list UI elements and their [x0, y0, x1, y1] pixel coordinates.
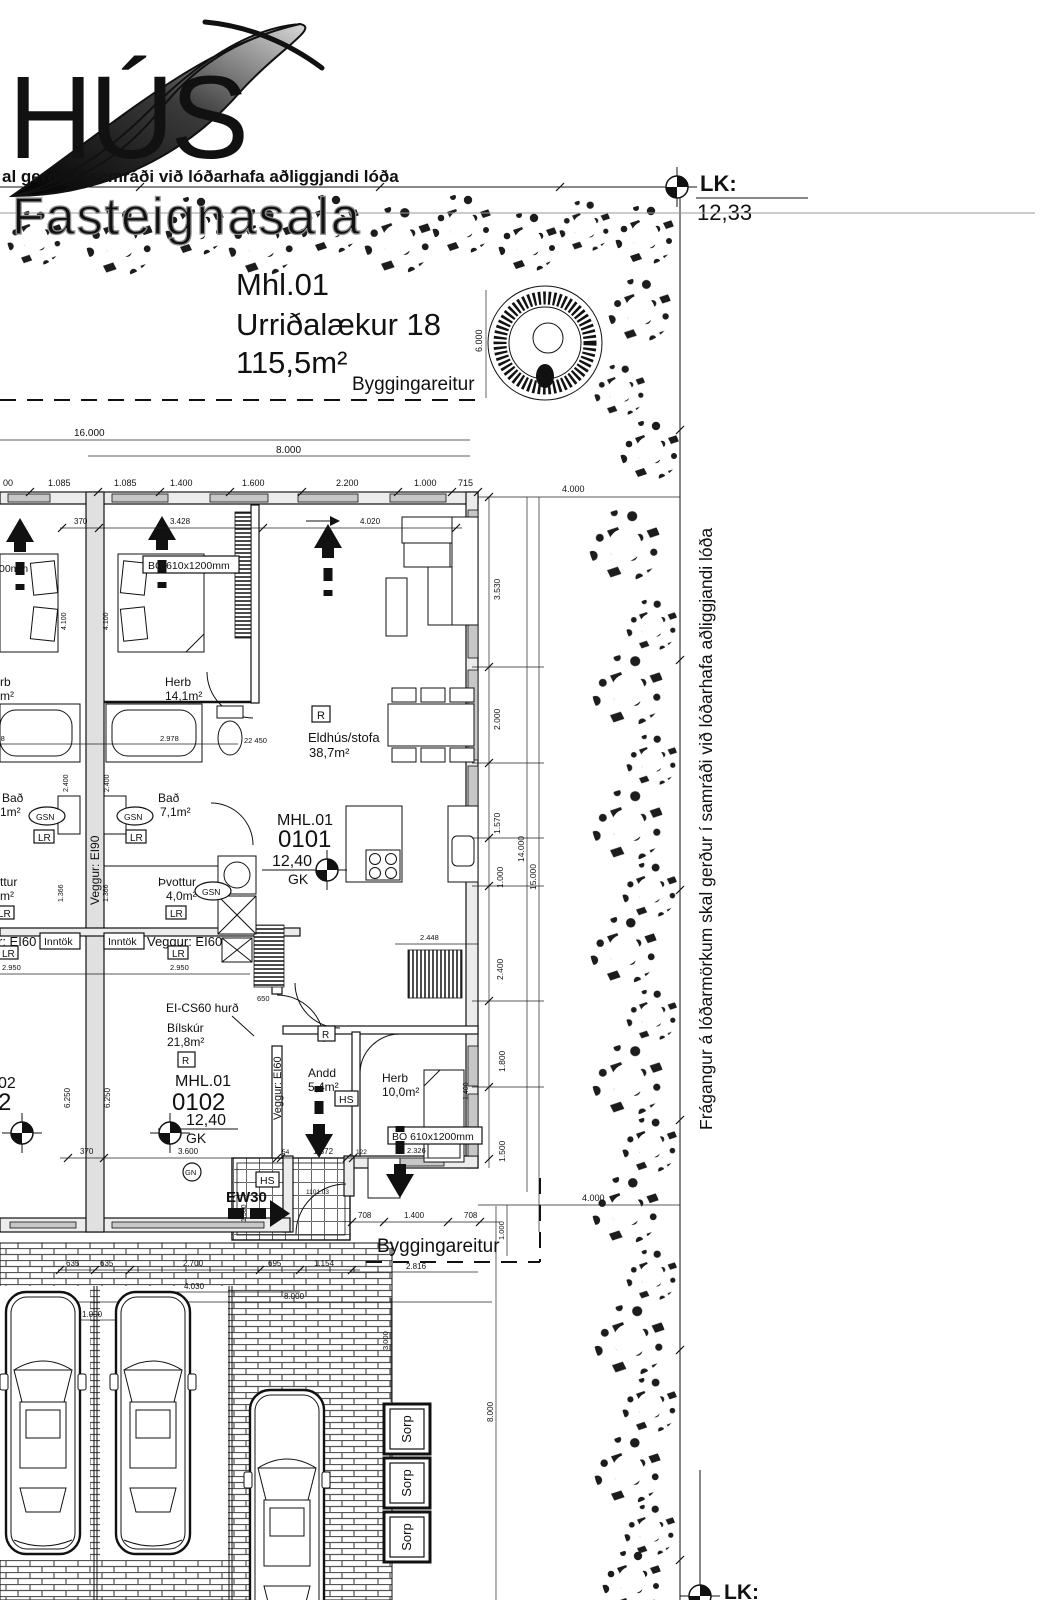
inntok-label: Inntök: [44, 936, 73, 948]
dim: 370: [74, 517, 88, 526]
dim: 2.326: [407, 1146, 426, 1155]
gsn-label: GSN: [36, 812, 54, 822]
dim: 1.372: [313, 1147, 334, 1156]
room-neighbor-herb-area: m²: [0, 689, 14, 703]
sofa: [386, 517, 478, 636]
dim: 8.000: [486, 1401, 495, 1422]
flow-arrow-icon: [306, 516, 340, 526]
dim: 650: [257, 994, 270, 1003]
door-arc: [295, 983, 340, 1028]
inntok-label: Inntök: [108, 936, 137, 948]
lr-label: LR: [38, 833, 51, 844]
car: [0, 1292, 86, 1554]
dim: 2.700: [183, 1259, 204, 1268]
unit-a-nr: 0101: [278, 826, 331, 853]
lr-label: LR: [0, 909, 11, 920]
toilet: [217, 706, 243, 718]
room-bilskur-name: Bílskúr: [167, 1021, 204, 1035]
room-eldhus-area: 38,7m²: [309, 745, 350, 760]
room-neighbor-herb: rb: [0, 675, 11, 689]
dim: 4.020: [360, 517, 381, 526]
dim: 1.366: [103, 884, 110, 902]
dim: 4.000: [582, 1193, 605, 1203]
smoke-detector-icon: R: [317, 710, 325, 722]
dim: 3.530: [492, 578, 502, 600]
room-bad-area: 7,1m²: [160, 805, 191, 819]
dim: 635: [66, 1259, 80, 1268]
plan-drawing: LK: 12,33 LK: Frágangur á lóðarmörkum sk…: [0, 0, 1058, 1600]
hs-label: HS: [260, 1175, 275, 1187]
dim: 54: [282, 1149, 290, 1156]
dim: 2.400: [63, 774, 70, 792]
unit-b-level: 12,40: [186, 1112, 226, 1129]
dim: 2.448: [420, 933, 439, 942]
lk-top-label: LK:: [700, 171, 737, 196]
plot-label-top: Byggingareitur: [352, 374, 475, 395]
room-bad-name: Bað: [158, 791, 180, 805]
room-herb2-name: Herb: [382, 1071, 408, 1085]
dim: 708: [358, 1211, 372, 1220]
hs-label: HS: [339, 1094, 354, 1106]
room-thvottur-area: 4,0m²: [166, 889, 197, 903]
address: Urriðalækur 18: [236, 307, 441, 342]
dim: 4.030: [184, 1282, 205, 1291]
sorp-label: Sorp: [399, 1415, 414, 1442]
lk-bottom-label: LK:: [724, 1581, 759, 1600]
dim: 1.570: [492, 812, 502, 834]
unit-0101: MHL.01 0101 12,40 GK: [262, 812, 347, 890]
bathroom: [0, 704, 243, 762]
unit-a-level: 12,40: [272, 853, 312, 870]
dim: 1.000: [495, 866, 505, 888]
dim: 122: [356, 1149, 367, 1156]
dim: 00: [3, 478, 13, 488]
room-andd-name: Andd: [308, 1066, 336, 1080]
dim: 2.400: [495, 958, 505, 980]
room-neighbor-thv: ttur: [0, 875, 17, 889]
building-id: Mhl.01: [236, 267, 329, 302]
lr-label: LR: [172, 949, 185, 960]
site-plan-page: LK: 12,33 LK: Frágangur á lóðarmörkum sk…: [0, 0, 1058, 1600]
dim: 2.950: [2, 963, 21, 972]
dim: 635: [100, 1259, 114, 1268]
sorp-label: Sorp: [399, 1469, 414, 1496]
dim: 8.000: [284, 1292, 305, 1301]
dim: 8.000: [276, 445, 301, 456]
dim: 1.400: [404, 1211, 425, 1220]
room-neighbor-thv-area: m²: [0, 889, 14, 903]
unit-n-big: 2: [0, 1089, 11, 1116]
dim: 695: [268, 1259, 282, 1268]
dim: 1.000: [414, 478, 437, 488]
dim: 2.200: [336, 478, 359, 488]
dim: 6.250: [63, 1087, 72, 1108]
dim-6000: 6.000: [474, 329, 484, 352]
wall60-vert-label: Veggur: EI60: [272, 1056, 284, 1120]
dim: 3.428: [170, 517, 191, 526]
car: [110, 1292, 196, 1554]
building-area: 115,5m²: [236, 345, 347, 380]
top-note: al gerður í samráði við lóðarhafa aðligg…: [2, 167, 399, 186]
ei-cs60-label: EI-CS60 hurð: [166, 1001, 239, 1015]
dim: 1.800: [497, 1050, 507, 1072]
dim: 1.600: [242, 478, 265, 488]
dim: 715: [458, 478, 473, 488]
dim: 16.000: [74, 428, 105, 439]
room-eldhus-name: Eldhús/stofa: [308, 730, 380, 745]
tech-shaft: [254, 925, 284, 987]
room-neighbor-bad: Bað: [2, 791, 24, 805]
door-arc: [360, 1034, 400, 1072]
kitchen: [346, 806, 478, 882]
dim: 1.000: [497, 1221, 506, 1240]
side-table: [386, 578, 407, 636]
logo: HÚS Fasteignasala: [0, 22, 1035, 246]
plot-label-bottom: Byggingareitur: [377, 1236, 500, 1257]
gsn-label: GSN: [124, 812, 142, 822]
dim: 2.950: [170, 963, 189, 972]
dim: 6.250: [103, 1087, 112, 1108]
boundary-note: Frágangur á lóðarmörkum skal gerður í sa…: [696, 528, 716, 1130]
dining-set: [388, 688, 474, 762]
sorp-bins: Sorp Sorp Sorp: [384, 1404, 430, 1562]
dim: 4.100: [61, 612, 68, 630]
circular-planter: [488, 286, 602, 400]
room-herb2-area: 10,0m²: [382, 1085, 419, 1099]
gn-label: GN: [185, 1168, 196, 1177]
bed-herb2: [424, 1070, 464, 1162]
dim: 1.085: [114, 478, 137, 488]
dim: 2.978: [160, 734, 179, 743]
tech-shaft: [408, 950, 462, 998]
room-neighbor-bad-area: 1m²: [0, 805, 21, 819]
lr-label: LR: [170, 909, 183, 920]
dim: 3.000: [381, 1331, 390, 1350]
dim: 1.366: [58, 884, 65, 902]
laundry: [218, 856, 256, 962]
wall90-label: Veggur: EI90: [88, 835, 102, 905]
room-herb1-area: 14,1m²: [165, 689, 202, 703]
dim: 1.400: [463, 1082, 470, 1100]
logo-subtitle: Fasteignasala: [12, 188, 362, 246]
dim: 1.400: [170, 478, 193, 488]
sorp-label: Sorp: [399, 1523, 414, 1550]
unit-b-datum: GK: [186, 1130, 207, 1146]
sink: [452, 836, 474, 866]
dim: 2.978: [0, 734, 5, 743]
dim: 4.000: [562, 484, 585, 494]
dim: 2.816: [406, 1262, 427, 1271]
dim: 14.000: [516, 836, 526, 862]
dim: 2.000: [492, 708, 502, 730]
smoke-detector-icon: R: [322, 1030, 329, 1041]
dim: 1.085: [48, 478, 71, 488]
unit-a-datum: GK: [288, 871, 309, 887]
gsn-label: GSN: [202, 887, 220, 897]
room-bilskur-area: 21,8m²: [167, 1035, 204, 1049]
room-thvottur-name: Þvottur: [158, 875, 196, 889]
dim: 1.000: [82, 1310, 103, 1319]
dim: 1.500: [241, 1204, 248, 1222]
lr-label: LR: [2, 949, 15, 960]
smoke-detector-icon: R: [182, 1056, 189, 1067]
wardrobe: [235, 512, 251, 638]
room-herb1-name: Herb: [165, 675, 191, 689]
dim: 3.600: [178, 1147, 199, 1156]
dim: 4.100: [103, 612, 110, 630]
dim: 708: [464, 1211, 478, 1220]
door-arc: [211, 803, 253, 845]
planter-dim: 6.000: [474, 290, 486, 398]
dim: 2.400: [104, 774, 111, 792]
ew30-label: EW30: [226, 1189, 267, 1206]
car: [244, 1390, 330, 1600]
dim: 1101.03: [306, 1189, 329, 1196]
garage-door-arc: [277, 995, 324, 1042]
unit-b-id: MHL.01: [175, 1073, 231, 1090]
unit-neighbor: 02 2: [0, 1075, 42, 1153]
dim: 1.500: [497, 1140, 507, 1162]
unit-0102: MHL.01 0102 12,40 GK: [150, 1073, 238, 1153]
survey-marker-bottom: LK:: [680, 1576, 759, 1600]
dim: 22 450: [244, 736, 267, 745]
dim: 15.000: [528, 864, 538, 890]
dim: 370: [80, 1147, 94, 1156]
logo-text: HÚS: [8, 52, 245, 184]
dim: 1.154: [314, 1259, 335, 1268]
lr-label: LR: [130, 833, 143, 844]
